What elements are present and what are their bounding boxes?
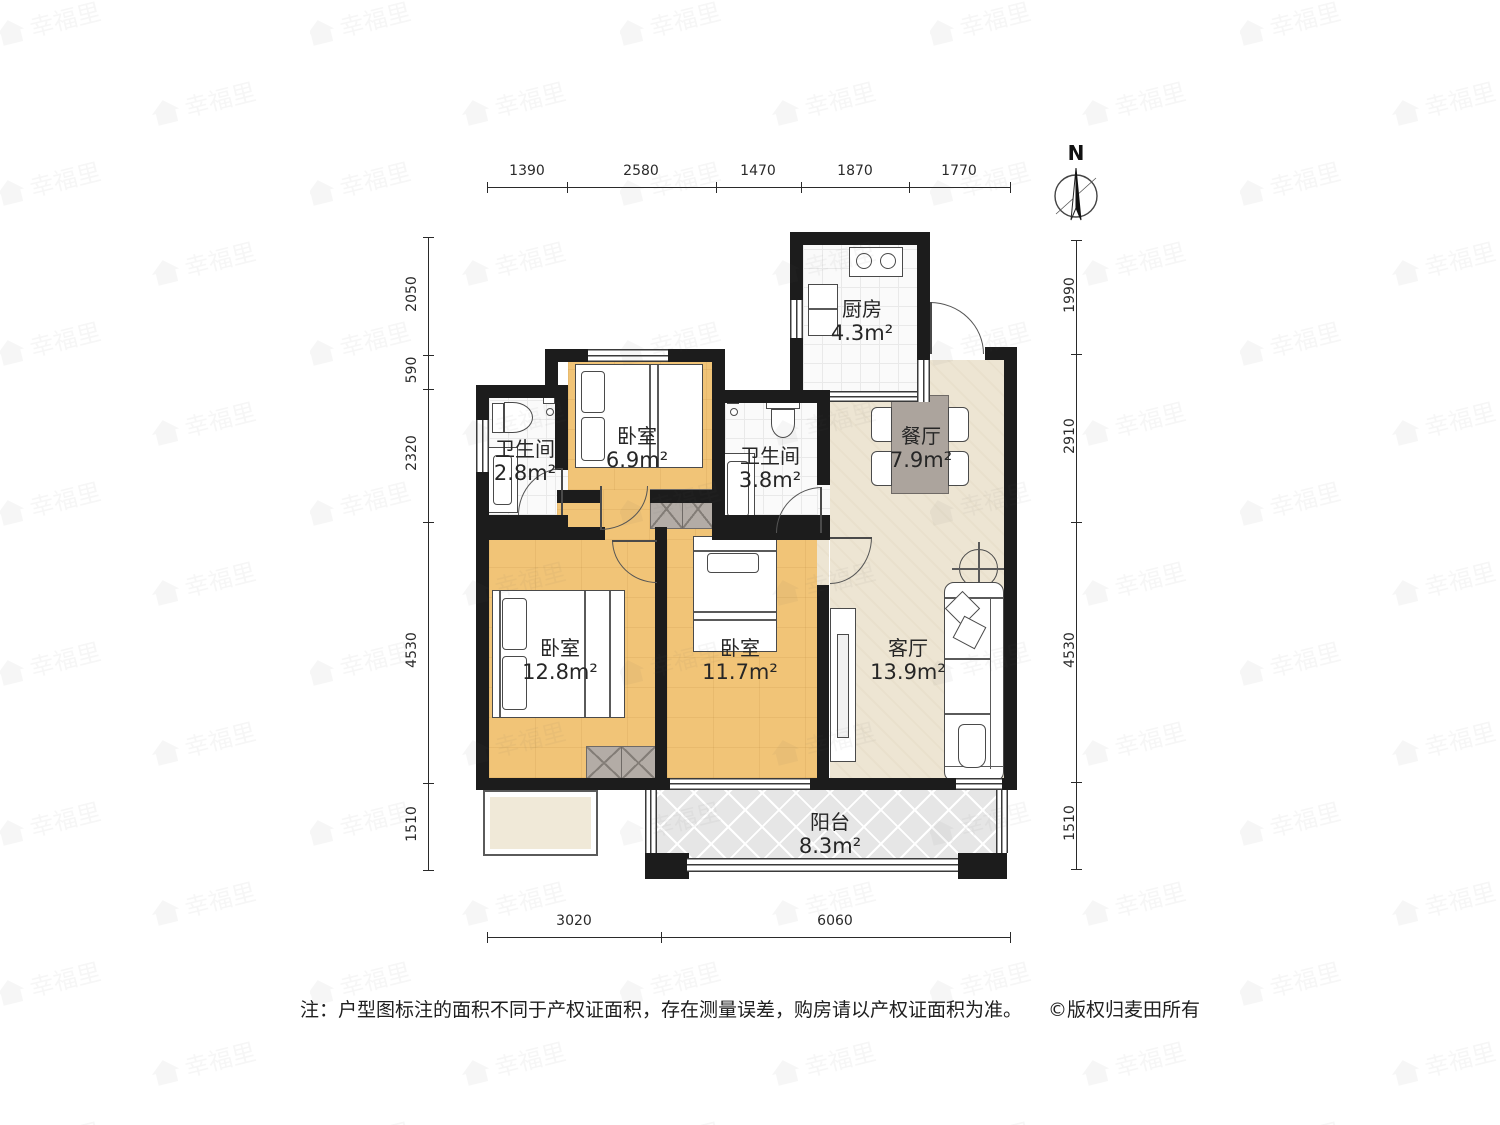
pillow	[707, 553, 759, 573]
room-label-kitchen: 厨房 4.3m²	[797, 297, 927, 346]
shower-drop-icon	[546, 408, 554, 416]
compass-icon: N	[1047, 142, 1105, 230]
wall	[1004, 347, 1017, 790]
dim-line-top	[487, 187, 1010, 188]
dim-bottom-1: 3020	[544, 913, 604, 929]
wall	[817, 585, 829, 790]
wall	[557, 490, 600, 503]
floor-plan-canvas: 厨房 4.3m² 餐厅 7.9m² 卫生间 2.8m² 卧室 6.9m² 卫生间…	[0, 0, 1500, 1125]
dim-left-2: 590	[404, 340, 420, 400]
dim-right-3: 4530	[1062, 620, 1078, 680]
room-label-bedroom-middle: 卧室 11.7m²	[675, 636, 805, 685]
pillow	[581, 371, 605, 413]
dim-left-3: 2320	[404, 423, 420, 483]
window	[588, 349, 668, 362]
window	[670, 778, 810, 790]
dim-top-1: 1390	[497, 163, 557, 179]
dim-top-4: 1870	[825, 163, 885, 179]
room-label-bath-left: 卫生间 2.8m²	[460, 437, 590, 486]
entry-door-leaf	[930, 302, 932, 354]
balcony-post	[958, 853, 1007, 879]
disclaimer-note: 注：户型图标注的面积不同于产权证面积，存在测量误差，购房请以产权证面积为准。©版…	[0, 995, 1500, 1022]
balcony-slider-door	[956, 778, 1002, 790]
dim-top-3: 1470	[728, 163, 788, 179]
room-label-balcony: 阳台 8.3m²	[765, 810, 895, 859]
dim-top-5: 1770	[929, 163, 989, 179]
shower-icon	[543, 397, 555, 404]
dim-bottom-2: 6060	[805, 913, 865, 929]
wall	[790, 232, 930, 245]
dim-line-right	[1076, 240, 1077, 869]
kitchen-slider-door	[830, 391, 917, 402]
wall	[476, 527, 605, 540]
dim-top-2: 2580	[611, 163, 671, 179]
bedroom-middle-door-leaf	[830, 537, 872, 539]
dim-right-2: 2910	[1062, 406, 1078, 466]
bay-window	[483, 790, 598, 856]
toilet-tank	[492, 403, 504, 433]
burner-icon	[880, 253, 896, 269]
dim-right-1: 1990	[1062, 265, 1078, 325]
bath-right-door-leaf	[820, 487, 822, 533]
compass-north-label: N	[1068, 142, 1085, 165]
shower-drop-icon	[730, 408, 738, 416]
dim-left-5: 1510	[404, 794, 420, 854]
balcony-window	[645, 790, 657, 853]
balcony-window	[996, 790, 1008, 853]
burner-icon	[856, 253, 872, 269]
entry-door-arc	[930, 302, 984, 354]
stove	[849, 247, 903, 277]
dim-right-4: 1510	[1062, 793, 1078, 853]
wall	[712, 390, 830, 403]
dim-line-bottom	[487, 937, 1010, 938]
wall	[476, 778, 667, 790]
room-label-bedroom-master: 卧室 12.8m²	[495, 636, 625, 685]
bedroom-master-door-leaf	[612, 540, 657, 542]
master-wardrobe	[586, 746, 656, 780]
kitchen-glass-partition	[917, 360, 930, 402]
balcony-post	[645, 853, 689, 879]
footstool	[958, 724, 986, 768]
bedroom-small-door-leaf	[600, 486, 602, 530]
dim-line-left	[428, 237, 429, 870]
note-text: 注：户型图标注的面积不同于产权证面积，存在测量误差，购房请以产权证面积为准。	[300, 999, 1022, 1021]
dim-left-4: 4530	[404, 620, 420, 680]
balcony-window	[687, 858, 958, 872]
wall	[650, 490, 713, 503]
dim-left-1: 2050	[404, 264, 420, 324]
bedroom-middle-door-patch	[817, 537, 829, 585]
copyright-text: ©版权归麦田所有	[1048, 999, 1200, 1021]
toilet-bowl	[771, 409, 795, 438]
wall	[712, 349, 725, 528]
room-label-bath-right: 卫生间 3.8m²	[705, 444, 835, 493]
room-label-living: 客厅 13.9m²	[843, 636, 973, 685]
room-label-dining: 餐厅 7.9m²	[856, 424, 986, 473]
room-label-bedroom-small: 卧室 6.9m²	[572, 424, 702, 473]
